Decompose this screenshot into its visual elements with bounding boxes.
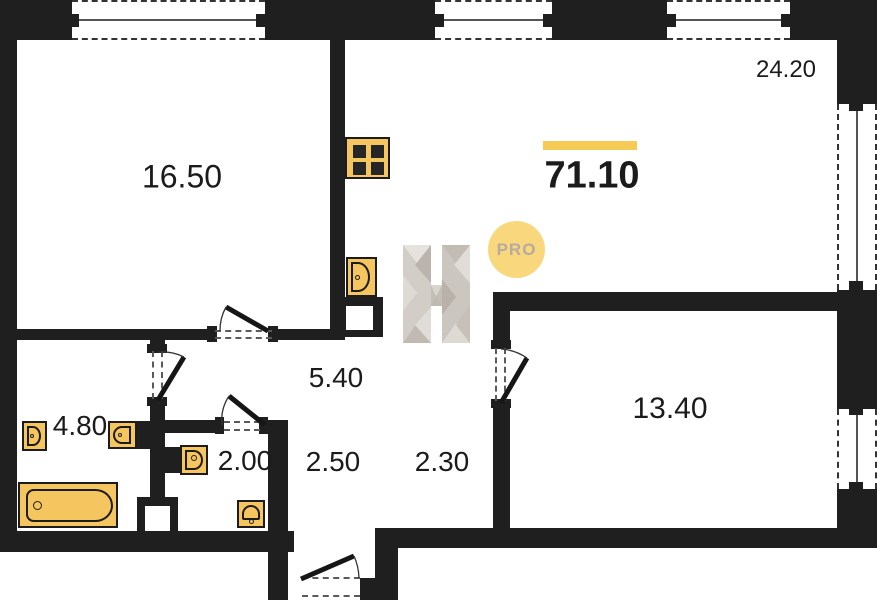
- window-tick: [849, 281, 863, 290]
- window-tick: [70, 14, 79, 27]
- wall: [493, 292, 877, 311]
- bathtub-icon: [18, 482, 118, 528]
- area-label-entry: 2.30: [415, 446, 470, 478]
- duct-opening: [145, 506, 170, 531]
- wall: [360, 578, 376, 600]
- washbasin-icon: [108, 421, 137, 449]
- window-tick: [256, 14, 265, 27]
- door-post: [207, 326, 217, 342]
- stove-burner: [353, 145, 366, 158]
- window-mullion: [435, 19, 552, 21]
- window: [837, 104, 877, 290]
- door-post: [147, 344, 167, 353]
- wall: [552, 0, 667, 40]
- area-label-bedroom2: 13.40: [632, 392, 707, 426]
- door-opening: [215, 330, 272, 332]
- washbasin-drain: [118, 433, 122, 437]
- door-opening: [224, 429, 260, 431]
- area-label-bedroom: 16.50: [142, 159, 222, 196]
- entrance-door-opening: [302, 595, 360, 597]
- wall: [0, 329, 215, 340]
- wall: [165, 420, 222, 433]
- washbasin-counter: [135, 421, 152, 449]
- wall: [837, 40, 877, 104]
- door-post: [147, 397, 167, 406]
- stove-icon: [345, 137, 390, 179]
- toilet-icon: [237, 500, 265, 528]
- window: [435, 0, 552, 40]
- wall: [265, 0, 435, 40]
- entrance-door-opening: [302, 577, 360, 579]
- sink-icon: [346, 257, 377, 297]
- toilet-drain: [249, 519, 254, 524]
- toilet-bowl: [242, 505, 260, 520]
- toilet-drain: [30, 434, 34, 438]
- window-mullion: [667, 19, 790, 21]
- washbasin-drain: [191, 455, 197, 461]
- window: [72, 0, 265, 40]
- area-label-bathroom: 4.80: [53, 410, 108, 442]
- washbasin-bowl: [113, 426, 131, 444]
- wall: [375, 548, 398, 600]
- sink-drain: [355, 275, 360, 280]
- window-tick: [849, 406, 863, 415]
- wall: [0, 0, 72, 40]
- area-label-hall: 5.40: [309, 362, 364, 394]
- floor-plan: PRO 16.50 24.20 71.10 5.40 4.80 2.00 2.5…: [0, 0, 877, 600]
- total-area-label: 71.10: [544, 155, 639, 198]
- window-tick: [781, 14, 790, 27]
- wall-kitchen-divider: [330, 40, 345, 299]
- wall: [0, 531, 294, 552]
- window-mullion: [856, 409, 858, 489]
- duct-opening: [346, 306, 373, 330]
- toilet-icon: [22, 421, 47, 451]
- brand-letter-watermark-icon: [403, 245, 470, 343]
- bathtub-drain: [33, 501, 42, 510]
- door-post: [268, 326, 278, 342]
- stove-burner: [353, 162, 366, 175]
- area-label-corridor: 2.50: [306, 446, 361, 478]
- door-opening: [161, 351, 163, 399]
- door-post: [259, 417, 268, 434]
- pro-badge-label: PRO: [497, 240, 537, 260]
- window-mullion: [856, 104, 858, 290]
- window-tick: [849, 482, 863, 491]
- window-tick: [849, 102, 863, 111]
- wall: [0, 40, 17, 552]
- window-tick: [543, 14, 552, 27]
- stove-burner: [371, 162, 384, 175]
- door-opening: [224, 421, 260, 423]
- door-post: [491, 340, 511, 349]
- wall: [493, 404, 510, 528]
- area-label-living-kitchen: 24.20: [756, 56, 816, 84]
- door-opening: [504, 348, 506, 401]
- window: [667, 0, 790, 40]
- pro-badge: PRO: [488, 221, 545, 278]
- window-tick: [667, 14, 676, 27]
- window-tick: [435, 14, 444, 27]
- door-post: [491, 399, 511, 408]
- washbasin-icon: [180, 445, 208, 475]
- door-opening: [215, 337, 272, 339]
- door-post: [215, 417, 224, 434]
- door-opening: [495, 348, 497, 401]
- door-opening: [152, 351, 154, 399]
- area-label-wc: 2.00: [218, 445, 273, 477]
- window: [837, 409, 877, 489]
- wall: [272, 329, 345, 340]
- window-mullion: [72, 19, 265, 21]
- wall: [790, 0, 877, 40]
- stove-burner: [371, 145, 384, 158]
- sink-basin: [351, 262, 370, 292]
- total-area-underline: [543, 141, 637, 150]
- washbasin-counter: [162, 447, 182, 473]
- wall: [375, 528, 877, 548]
